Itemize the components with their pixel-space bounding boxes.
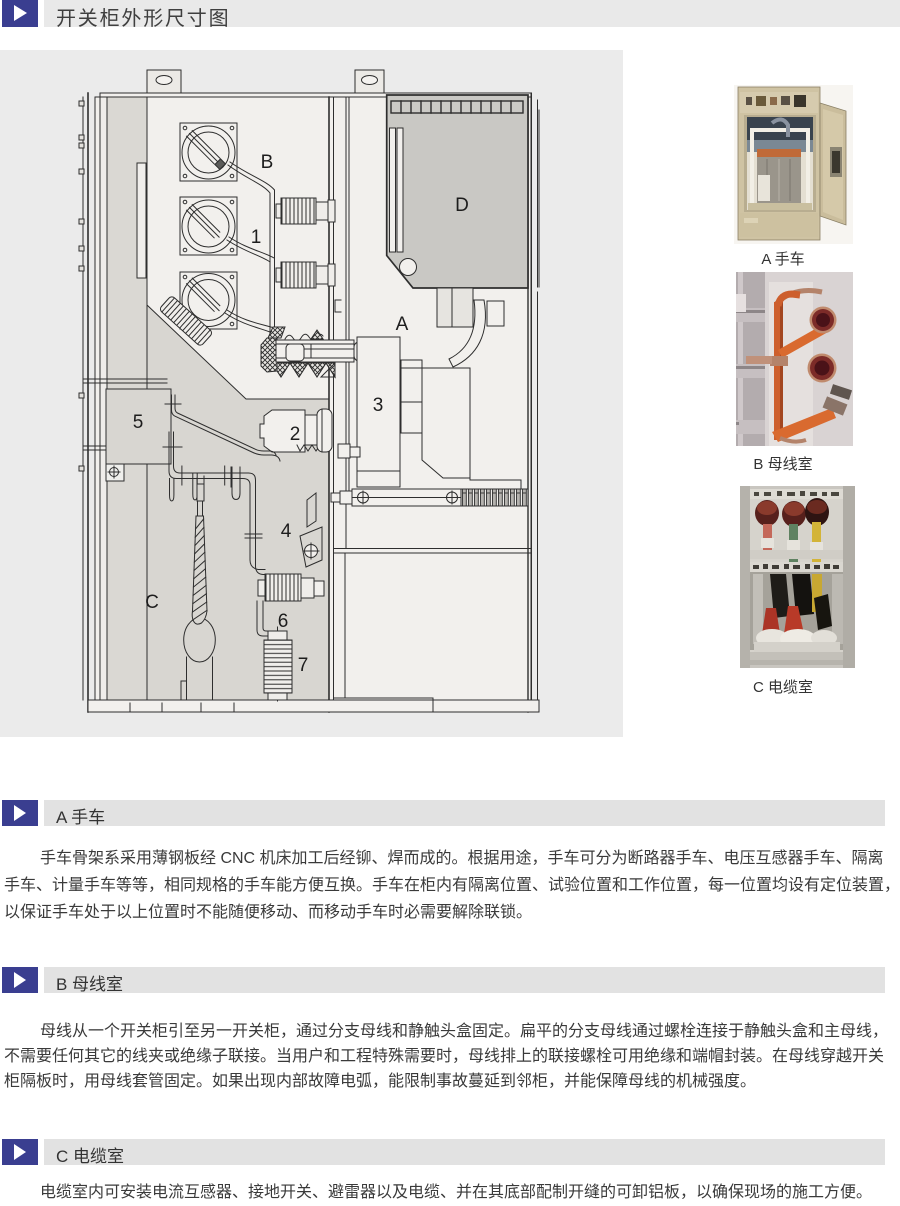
- svg-text:2: 2: [290, 424, 301, 445]
- svg-text:3: 3: [373, 395, 384, 416]
- svg-text:B: B: [261, 152, 274, 173]
- svg-text:5: 5: [133, 412, 144, 433]
- svg-text:A: A: [396, 314, 409, 335]
- svg-text:C: C: [145, 592, 159, 613]
- svg-text:6: 6: [278, 611, 289, 632]
- svg-text:7: 7: [298, 655, 309, 676]
- svg-text:1: 1: [251, 227, 262, 248]
- svg-text:4: 4: [281, 521, 292, 542]
- svg-text:D: D: [455, 195, 469, 216]
